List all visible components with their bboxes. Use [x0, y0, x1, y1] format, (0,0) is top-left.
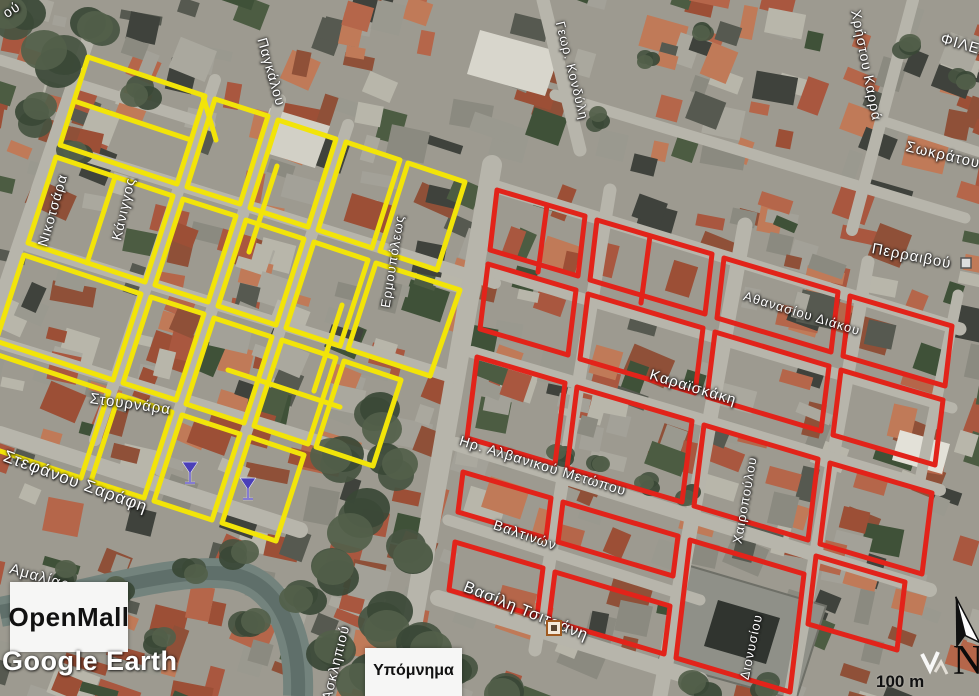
satellite-imagery: [0, 0, 979, 696]
google-earth-watermark: Google Earth: [2, 646, 178, 677]
legend-box: Υπόμνημα: [365, 648, 462, 696]
openmall-label-box: OpenMall: [10, 582, 128, 652]
north-indicator: N: [905, 592, 979, 692]
north-label: N: [953, 640, 979, 682]
wine-glass-poi-icon[interactable]: [180, 460, 200, 493]
legend-title: Υπόμνημα: [373, 662, 454, 680]
map-canvas[interactable]: ούΠαγκάλουΓεωρ. ΚονδύληΦΙΛΕΛΛΗΝΩΝΣωκράτο…: [0, 0, 979, 696]
openmall-label: OpenMall: [9, 602, 130, 633]
photo-marker-icon-small[interactable]: [960, 256, 972, 274]
photo-marker-icon[interactable]: [546, 620, 562, 641]
wine-glass-poi-icon[interactable]: [238, 476, 258, 509]
